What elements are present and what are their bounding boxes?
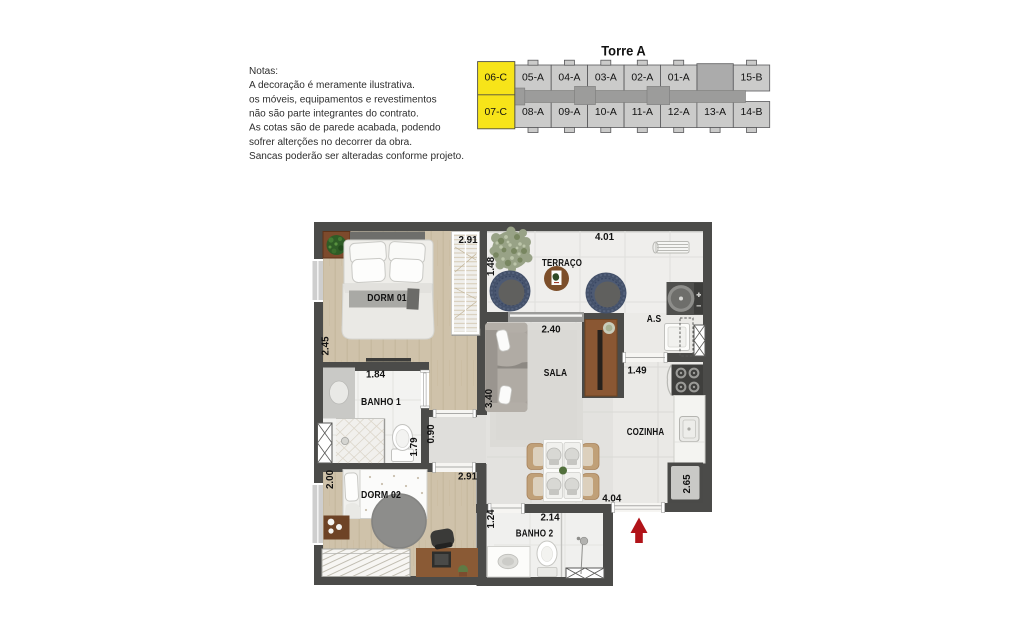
svg-text:BANHO 2: BANHO 2 xyxy=(516,529,554,540)
svg-text:COZINHA: COZINHA xyxy=(627,427,665,438)
svg-text:1.48: 1.48 xyxy=(486,256,497,276)
svg-text:13-A: 13-A xyxy=(704,107,726,118)
svg-text:As cotas são de parede acabada: As cotas são de parede acabada, podendo xyxy=(249,123,441,134)
svg-text:2.40: 2.40 xyxy=(541,325,561,336)
svg-text:1.24: 1.24 xyxy=(486,509,497,529)
svg-text:03-A: 03-A xyxy=(595,73,617,84)
svg-text:DORM 02: DORM 02 xyxy=(361,490,401,501)
svg-text:2.65: 2.65 xyxy=(682,474,693,494)
svg-text:2.00: 2.00 xyxy=(325,469,336,489)
svg-text:TERRAÇO: TERRAÇO xyxy=(542,258,582,269)
svg-text:07-C: 07-C xyxy=(485,107,508,118)
svg-text:não são parte integrantes do c: não são parte integrantes do contrato. xyxy=(249,109,419,120)
svg-text:2.14: 2.14 xyxy=(540,512,560,523)
svg-text:09-A: 09-A xyxy=(558,107,580,118)
svg-text:1.84: 1.84 xyxy=(366,370,386,381)
svg-text:A.S: A.S xyxy=(647,314,662,325)
svg-text:15-B: 15-B xyxy=(741,73,763,84)
svg-text:2.45: 2.45 xyxy=(321,336,332,356)
svg-text:4.04: 4.04 xyxy=(602,494,622,505)
svg-text:sofrer alterções no decorrer d: sofrer alterções no decorrer da obra. xyxy=(249,137,412,148)
svg-text:BANHO 1: BANHO 1 xyxy=(361,397,401,408)
svg-text:12-A: 12-A xyxy=(668,107,690,118)
svg-text:2.91: 2.91 xyxy=(458,472,478,483)
svg-text:3.40: 3.40 xyxy=(484,388,495,408)
svg-text:1.79: 1.79 xyxy=(409,437,420,457)
svg-text:08-A: 08-A xyxy=(522,107,544,118)
svg-text:Notas:: Notas: xyxy=(249,66,278,77)
svg-text:06-C: 06-C xyxy=(485,73,508,84)
svg-text:A decoração é meramente ilustr: A decoração é meramente ilustrativa. xyxy=(249,80,415,91)
svg-text:Torre A: Torre A xyxy=(601,43,646,59)
svg-text:4.01: 4.01 xyxy=(595,232,615,243)
svg-text:05-A: 05-A xyxy=(522,73,544,84)
svg-text:Sancas poderão ser alteradas c: Sancas poderão ser alteradas conforme pr… xyxy=(249,151,464,162)
svg-text:SALA: SALA xyxy=(544,368,568,379)
svg-text:os móveis, equipamentos e reve: os móveis, equipamentos e revestimentos xyxy=(249,94,437,105)
svg-text:04-A: 04-A xyxy=(558,73,580,84)
svg-text:2.91: 2.91 xyxy=(458,235,478,246)
svg-text:1.49: 1.49 xyxy=(627,366,647,377)
svg-text:01-A: 01-A xyxy=(668,73,690,84)
svg-text:14-B: 14-B xyxy=(741,107,763,118)
svg-text:02-A: 02-A xyxy=(631,73,653,84)
svg-text:11-A: 11-A xyxy=(632,107,653,118)
svg-text:DORM 01: DORM 01 xyxy=(367,293,407,304)
svg-text:0.90: 0.90 xyxy=(426,424,437,444)
svg-text:10-A: 10-A xyxy=(595,107,617,118)
